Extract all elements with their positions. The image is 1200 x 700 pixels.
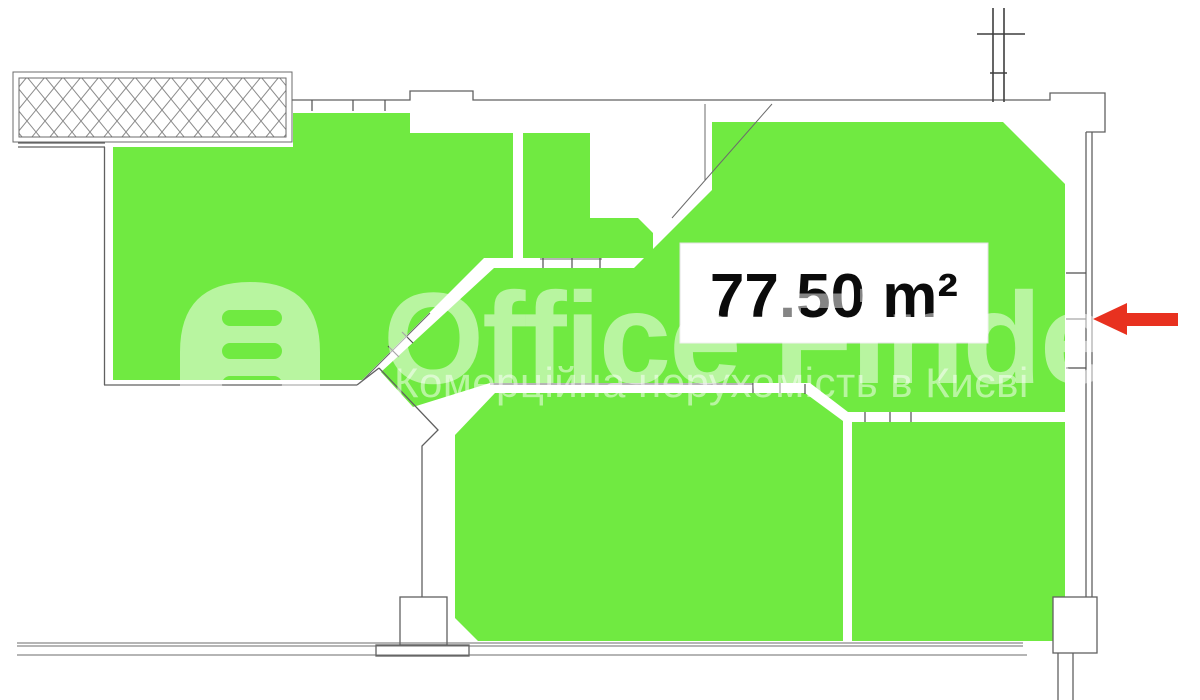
survey-cross-icon bbox=[977, 8, 1025, 102]
room-bottom bbox=[455, 393, 843, 641]
entry-step bbox=[376, 645, 469, 656]
watermark-subtitle: Комерційна нерухомість в Києві bbox=[394, 359, 1029, 406]
floor-plan-image: 77.50 m² Office Finder Комерційна нерухо… bbox=[0, 0, 1200, 700]
site-boundary-lines bbox=[17, 643, 1027, 655]
room-bottom-right bbox=[852, 422, 1065, 641]
room-middle bbox=[523, 133, 653, 258]
entry-porch bbox=[400, 597, 447, 645]
hatched-wall-block bbox=[13, 72, 292, 142]
floor-plan-canvas: 77.50 m² Office Finder Комерційна нерухо… bbox=[0, 0, 1200, 700]
